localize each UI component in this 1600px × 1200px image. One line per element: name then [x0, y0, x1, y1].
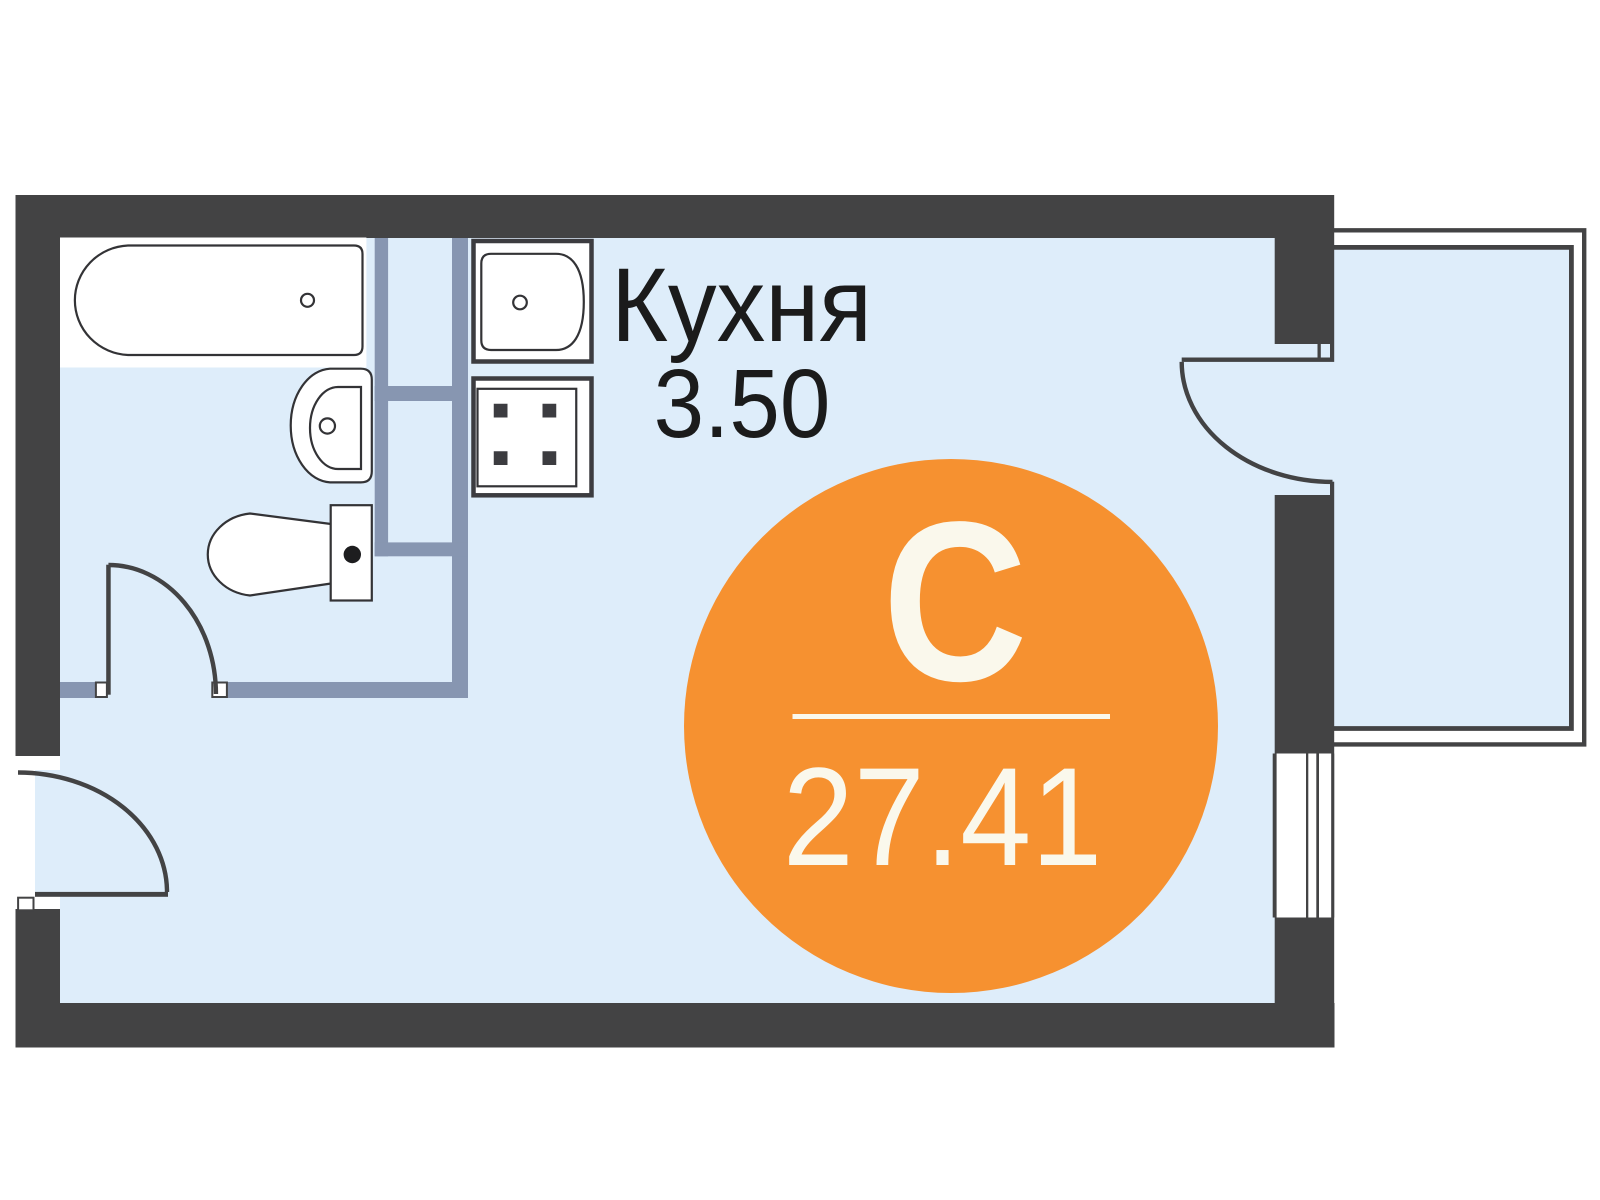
- svg-text:3.50: 3.50: [654, 349, 831, 458]
- svg-text:27.41: 27.41: [783, 740, 1102, 896]
- svg-text:С: С: [882, 475, 1027, 728]
- svg-text:Кухня: Кухня: [611, 247, 872, 364]
